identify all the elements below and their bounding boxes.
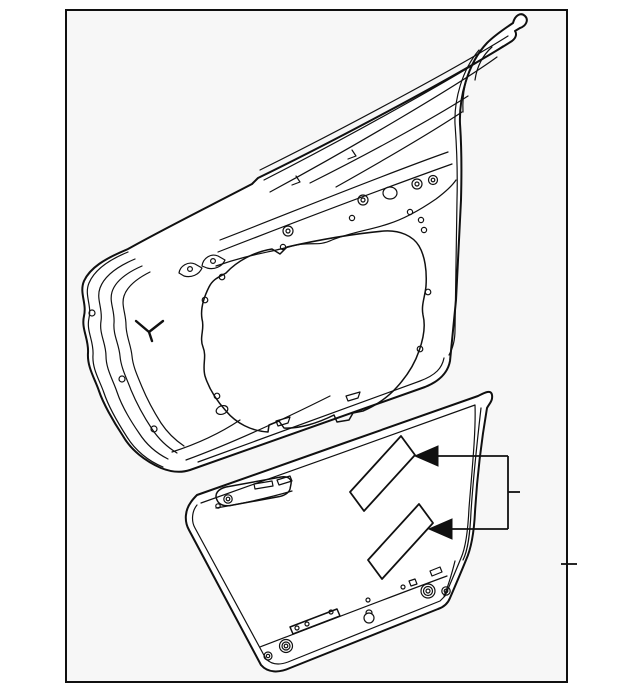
- parts-diagram: [0, 0, 640, 692]
- parts-diagram-page: [0, 0, 640, 692]
